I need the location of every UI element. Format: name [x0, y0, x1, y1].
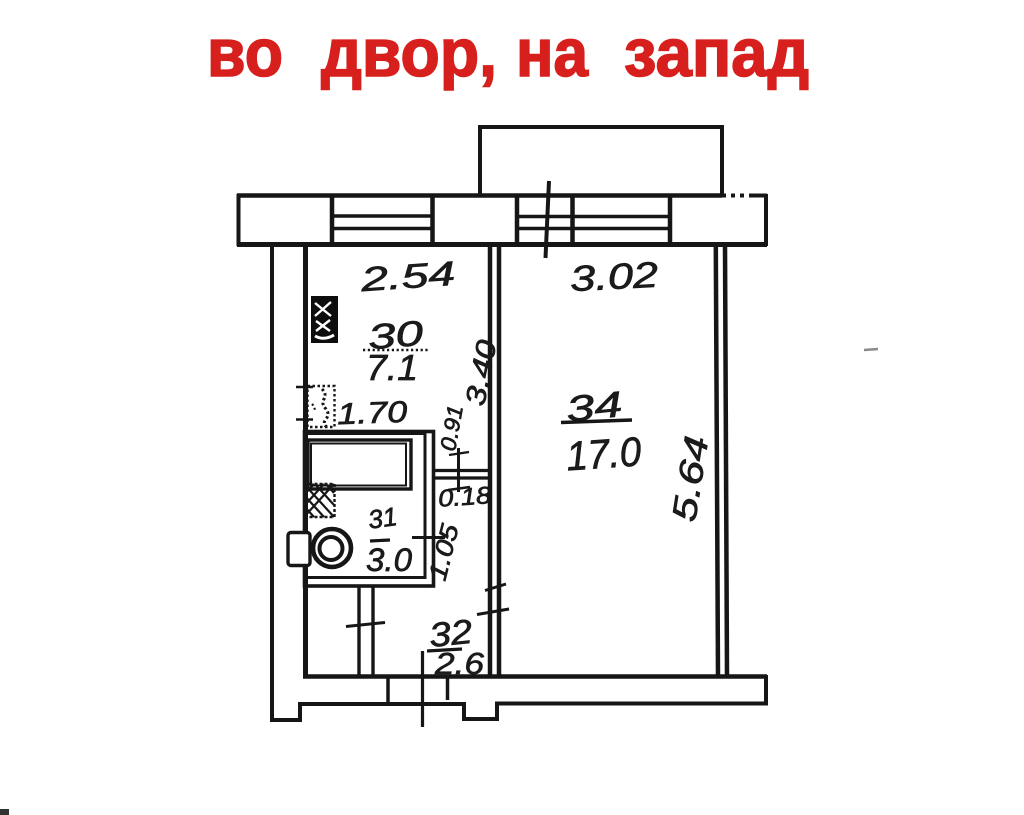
- svg-text:1.70: 1.70: [337, 396, 408, 431]
- svg-text:17.0: 17.0: [565, 428, 643, 479]
- svg-text:во: во: [207, 15, 283, 91]
- svg-text:3.02: 3.02: [569, 254, 659, 300]
- svg-text:0.18: 0.18: [437, 482, 492, 513]
- svg-text:запад: запад: [624, 15, 809, 91]
- svg-text:3.40: 3.40: [459, 337, 502, 408]
- svg-text:5.64: 5.64: [665, 433, 716, 524]
- svg-text:2.54: 2.54: [359, 255, 457, 300]
- svg-text:31: 31: [366, 501, 399, 535]
- svg-text:0.91: 0.91: [435, 403, 468, 453]
- svg-text:1.05: 1.05: [424, 521, 465, 583]
- svg-text:7.1: 7.1: [366, 347, 418, 388]
- svg-text:на: на: [516, 15, 589, 91]
- svg-text:двор,: двор,: [321, 15, 497, 91]
- svg-text:3.0: 3.0: [366, 542, 412, 578]
